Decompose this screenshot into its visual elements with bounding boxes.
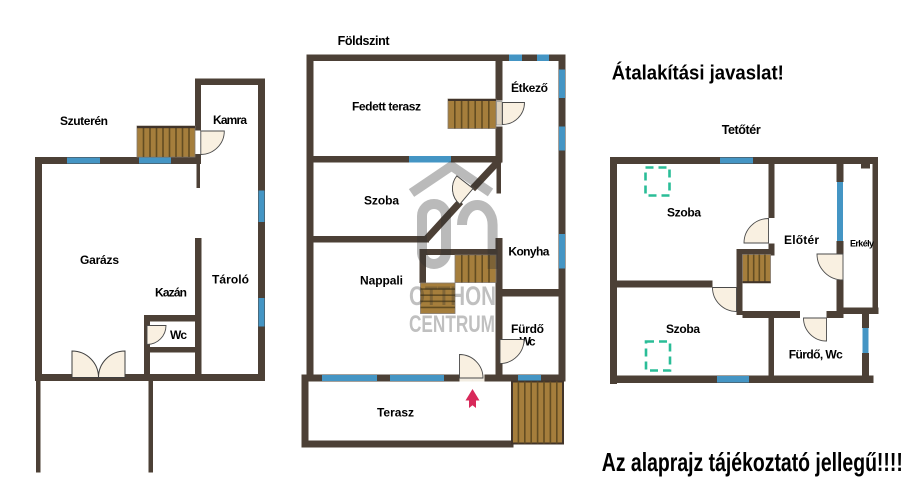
svg-text:Az alaprajz tájékoztató jelleg: Az alaprajz tájékoztató jellegű!!!! (602, 447, 903, 477)
svg-text:Terasz: Terasz (377, 406, 414, 420)
svg-text:Földszint: Földszint (338, 34, 391, 48)
svg-text:Előtér: Előtér (784, 233, 819, 247)
svg-text:Konyha: Konyha (508, 244, 549, 258)
svg-text:Tároló: Tároló (212, 273, 249, 287)
svg-text:Kazán: Kazán (155, 286, 187, 300)
svg-text:Nappali: Nappali (360, 273, 403, 287)
svg-text:Kamra: Kamra (213, 113, 247, 127)
svg-text:CENTRUM: CENTRUM (409, 311, 495, 338)
svg-text:Erkély: Erkély (850, 239, 874, 249)
svg-text:Garázs: Garázs (80, 253, 119, 267)
svg-text:Fedett terasz: Fedett terasz (352, 100, 421, 114)
svg-text:Átalakítási javaslat!: Átalakítási javaslat! (612, 62, 784, 85)
svg-text:Szoba: Szoba (364, 193, 399, 207)
svg-text:Szuterén: Szuterén (60, 114, 108, 128)
svg-text:Szoba: Szoba (667, 205, 701, 219)
svg-text:Fürdő, Wc: Fürdő, Wc (789, 347, 843, 361)
svg-text:Wc: Wc (170, 328, 187, 342)
svg-text:Szoba: Szoba (666, 322, 700, 336)
svg-text:Étkező: Étkező (511, 80, 548, 95)
svg-text:OTTHON: OTTHON (409, 281, 496, 311)
svg-text:Tetőtér: Tetőtér (722, 123, 761, 137)
